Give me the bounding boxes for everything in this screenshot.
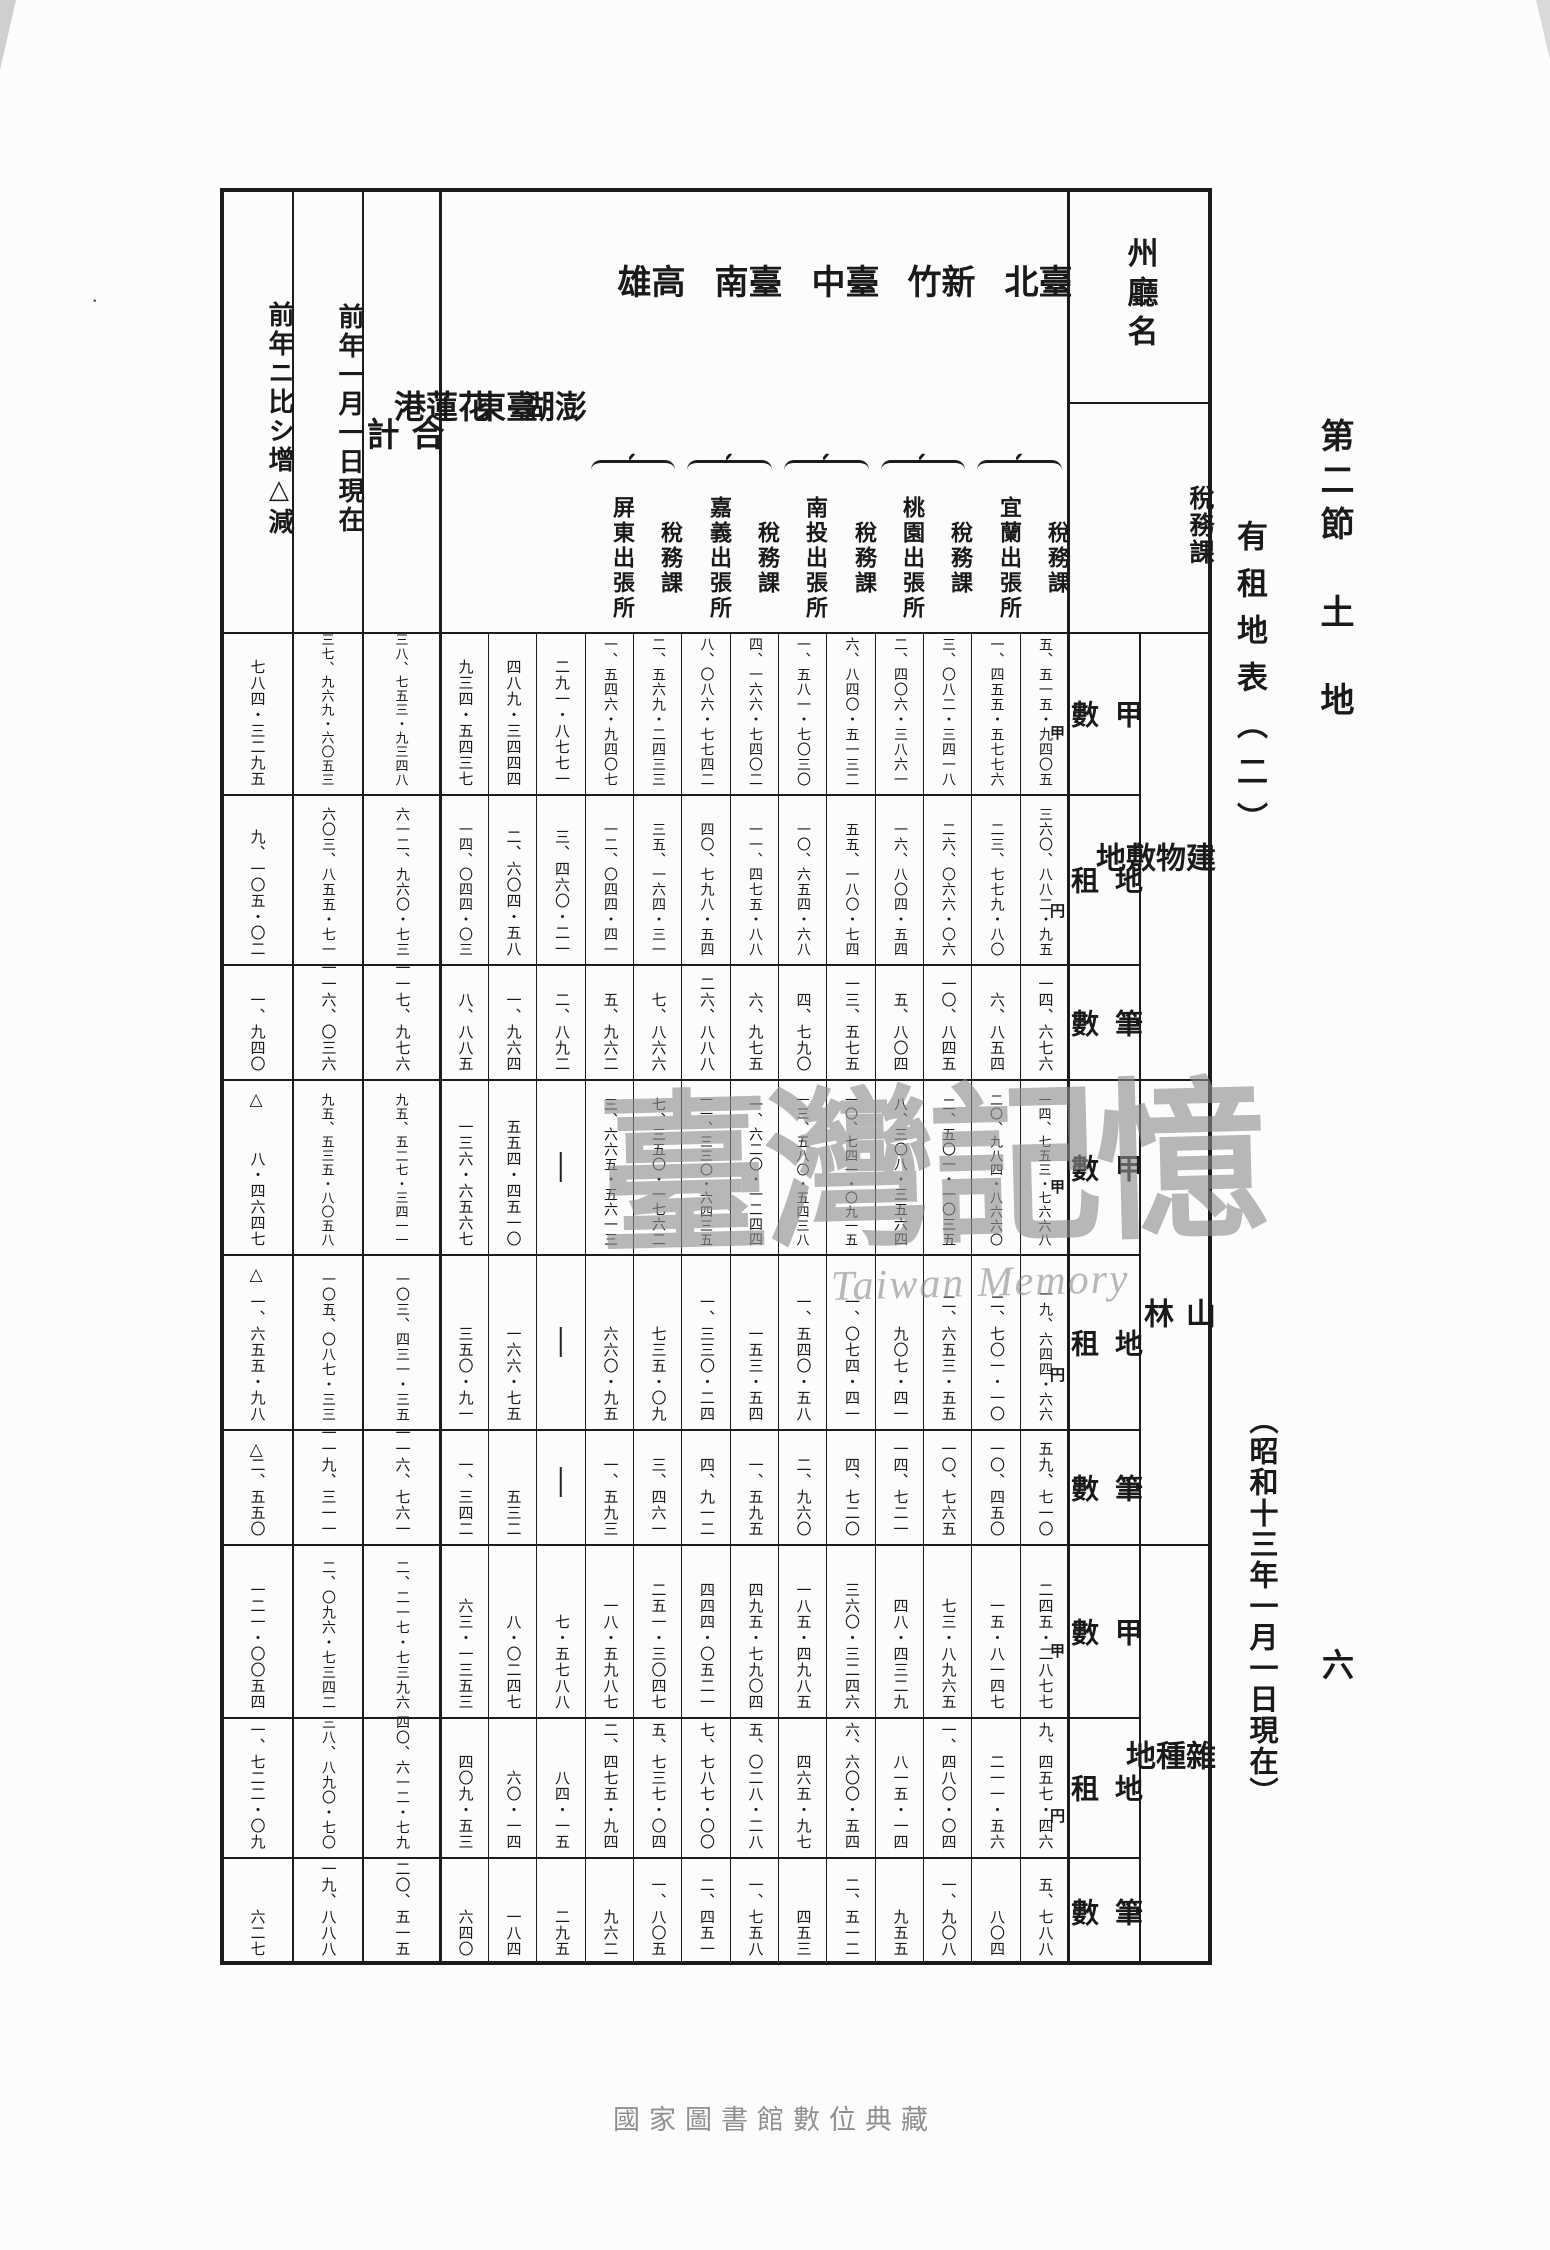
table-cell: 一、三四二 [440, 1430, 488, 1545]
table-cell: 五、〇二八・二八 [730, 1718, 778, 1858]
value: 三五、一六四・三一 [650, 822, 664, 957]
value: 一四、七五三・七六六八 [1038, 1093, 1051, 1247]
value: 三八、七五三・九三四八 [395, 633, 408, 787]
measure-label: 筆數 [1068, 965, 1140, 1080]
table-cell: 八、〇八六・七七四二 [681, 633, 730, 795]
value: 四八九・三四四四 [505, 659, 520, 787]
table-cell: 九五、五三五・八〇五八 [292, 1080, 362, 1255]
table-cell: 二〇、九八四・八六六〇 [971, 1080, 1020, 1255]
unit-marker: 甲 [1050, 1640, 1210, 1661]
table-cell: △二、五五〇 [220, 1430, 292, 1545]
value: 四八・四三二九 [892, 1598, 907, 1710]
value: 六四〇 [457, 1909, 472, 1957]
table-cell: △八・四六四七 [220, 1080, 292, 1255]
table-cell: 六、九七五 [730, 965, 778, 1080]
column-label: 臺東 [488, 212, 536, 600]
footer-caption: 國家圖書館數位典藏 [0, 2098, 1550, 2137]
table-cell: 三六〇・三二四六 [826, 1545, 875, 1718]
dash-value [559, 1327, 562, 1357]
value: 七・五七八八 [553, 1614, 568, 1710]
table-cell: 二三、七七九・八〇 [971, 795, 1020, 965]
table-cell: 一九、六四四・六六 [1020, 1255, 1068, 1430]
value: 一、七五八 [747, 1877, 762, 1957]
table-cell: 六三・一三五三 [440, 1545, 488, 1718]
column-sub-label: 稅務課 [633, 484, 681, 632]
table-cell: 一、五四六・九四〇七 [585, 633, 633, 795]
table-cell: 二五一・三〇四七 [633, 1545, 681, 1718]
value: 一一九、三一一 [320, 1425, 335, 1537]
value: 五三二 [505, 1489, 520, 1537]
value: 九五五 [892, 1909, 907, 1957]
value: 九、四五七・四六 [1037, 1722, 1052, 1850]
category-label: 建物敷地 [1140, 633, 1212, 1080]
value: 五五、一八〇・七四 [844, 822, 858, 957]
column-sub-label: 稅務課 [923, 484, 971, 632]
value: 一、五九五 [747, 1457, 762, 1537]
unit-marker: 甲 [1050, 722, 1210, 743]
table-cell: 一、〇七四・四一 [826, 1255, 875, 1430]
table-cell: 九、四五七・四六 [1020, 1718, 1068, 1858]
group-brace [977, 460, 1062, 477]
measure-label: 甲數 [1068, 633, 1140, 795]
value: 二、〇九六・七三四二 [320, 1560, 334, 1710]
value: 二九一・八七七一 [553, 659, 568, 787]
column-group-label: 臺中 [778, 212, 875, 422]
table-cell: 四、一六六・七四〇二 [730, 633, 778, 795]
table-cell: 一、三三〇・二四 [681, 1255, 730, 1430]
value: 一、六二〇・一二四四 [747, 1097, 761, 1247]
table-cell: 四四四・〇五二一 [681, 1545, 730, 1718]
value: 一四、七二一 [892, 1441, 907, 1537]
table-cell: 一一六、〇三六 [292, 965, 362, 1080]
table-cell: 四〇、六一二・七九 [362, 1718, 440, 1858]
section-title: 第二節 土 地 [1316, 418, 1350, 726]
table-cell: 一八四 [488, 1858, 536, 1965]
table-cell: 二六、八八八 [681, 965, 730, 1080]
value: 三五〇・九一 [457, 1326, 472, 1422]
table-cell: 八四・一五 [536, 1718, 585, 1858]
table-cell: 二、五〇一・一〇三五 [923, 1080, 971, 1255]
value: 七、七八七・〇〇 [698, 1722, 713, 1850]
value: 四、一六六・七四〇二 [747, 637, 761, 787]
table-cell: 一八・五九八七 [585, 1545, 633, 1718]
value: 一五三・五四 [747, 1326, 762, 1422]
table-cell: 六四〇 [440, 1858, 488, 1965]
table-cell: 三五〇・九一 [440, 1255, 488, 1430]
table-cell: 三、四六〇・二一 [536, 795, 585, 965]
value: 一二一・〇〇五四 [249, 1582, 264, 1710]
table-cell: 二、七〇一・一〇 [971, 1255, 1020, 1430]
value: 一〇、四五〇 [988, 1441, 1003, 1537]
table-cell: 八、三〇八・三五六四 [875, 1080, 923, 1255]
column-sub-label: 稅務課 [1020, 484, 1068, 632]
table-cell: 一、九六四 [488, 965, 536, 1080]
land-rent-table: 州廳名稅務課稅務出張所別臺北新竹臺中臺南高雄澎湖臺東花蓮港合計前年一月一日現在前… [220, 188, 1212, 1965]
value: 一八四 [505, 1909, 520, 1957]
table-cell: 一二、〇四四・四一 [585, 795, 633, 965]
table-cell: 七、三五〇・一七六二 [633, 1080, 681, 1255]
value: 一四、六七六 [1037, 976, 1052, 1072]
value: 九、一〇五・〇二 [249, 829, 264, 957]
value: 一五・八一四七 [988, 1598, 1003, 1710]
value: 七八四・三二九五 [249, 659, 264, 787]
value: 五九、七一〇 [1037, 1441, 1052, 1537]
table-cell: 一、六二〇・一二四四 [730, 1080, 778, 1255]
scan-corner-artifact [1536, 0, 1550, 60]
table-cell: 一、四五五・五七七六 [971, 633, 1020, 795]
column-label: 花蓮港 [440, 212, 488, 600]
category-label: 山林 [1140, 1080, 1212, 1545]
value: 一、〇七四・四一 [843, 1294, 858, 1422]
column-sub-label: 南投出張所 [778, 484, 826, 632]
table-cell: 三、六六五・五六一三 [585, 1080, 633, 1255]
table-cell: 二、六五三・五五 [923, 1255, 971, 1430]
value: 一九、八八八 [320, 1861, 335, 1957]
value: 七三五・〇九 [650, 1326, 665, 1422]
table-cell: 一八五・四九八五 [778, 1545, 826, 1718]
value: 二、七〇一・一〇 [988, 1294, 1003, 1422]
table-cell: 五、八〇四 [875, 965, 923, 1080]
table-cell: △一、六五五・九八 [220, 1255, 292, 1430]
value: 二九五 [553, 1909, 568, 1957]
value: 一、五四〇・五八 [795, 1294, 810, 1422]
scan-corner-artifact [0, 0, 16, 70]
table-cell: 一四、七二一 [875, 1430, 923, 1545]
value: 六、六〇〇・五四 [843, 1722, 858, 1850]
table-cell: 五三二 [488, 1430, 536, 1545]
table-cell: 八、八八五 [440, 965, 488, 1080]
value: 七、三五〇・一七六二 [650, 1097, 664, 1247]
table-cell: 一三、五七五 [826, 965, 875, 1080]
value: 一、四八〇・〇四 [940, 1722, 955, 1850]
value: 二〇、五一五 [394, 1861, 409, 1957]
total-column-label: 合計 [362, 288, 440, 578]
column-label: 前年ニ比シ增△減 [220, 214, 292, 624]
table-cell: 一〇、七六五 [923, 1430, 971, 1545]
value: 二、五六九・二四三三 [650, 637, 664, 787]
value: 一〇五、〇八七・三三 [320, 1272, 334, 1422]
table-cell: 四八・四三二九 [875, 1545, 923, 1718]
table-cell: 四、七二〇 [826, 1430, 875, 1545]
table-cell: 九〇七・四一 [875, 1255, 923, 1430]
table-cell: 六一二、九六〇・七三 [362, 795, 440, 965]
table-cell: 一、五九三 [585, 1430, 633, 1545]
table-cell: 七、八六六 [633, 965, 681, 1080]
value: 一八・五九八七 [602, 1598, 617, 1710]
value: 一六、八〇四・五四 [892, 822, 906, 957]
column-sub-label: 屏東出張所 [585, 484, 633, 632]
value: 四五三 [795, 1909, 810, 1957]
table-cell: 三八、八九〇・七〇 [292, 1718, 362, 1858]
table-cell: 六、八五四 [971, 965, 1020, 1080]
table-cell: 八・〇二四七 [488, 1545, 536, 1718]
value: 二、四七五・九四 [602, 1722, 617, 1850]
value: 二、五五〇 [249, 1457, 264, 1537]
table-cell: 一五・八一四七 [971, 1545, 1020, 1718]
table-cell: 一二一・〇〇五四 [220, 1545, 292, 1718]
table-cell: 五、七三七・〇四 [633, 1718, 681, 1858]
table-cell: 一、九〇八 [923, 1858, 971, 1965]
column-group-label: 臺南 [681, 212, 778, 422]
dash-value [559, 1467, 562, 1497]
table-cell: 九、一〇五・〇二 [220, 795, 292, 965]
column-sub-label: 宜蘭出張所 [971, 484, 1020, 632]
table-cell: 二一一・五六 [971, 1718, 1020, 1858]
value: 二六、〇六六・〇六 [940, 822, 954, 957]
value: 八・〇二四七 [505, 1614, 520, 1710]
table-cell: 七三五・〇九 [633, 1255, 681, 1430]
value: 三、六六五・五六一三 [602, 1097, 616, 1247]
table-cell: 三八、七五三・九三四八 [362, 633, 440, 795]
value: 八四・一五 [553, 1770, 568, 1850]
table-cell: 二、八九二 [536, 965, 585, 1080]
unit-marker: 円 [1050, 1805, 1210, 1826]
table-cell: 六、六〇〇・五四 [826, 1718, 875, 1858]
table-cell: 一、四八〇・〇四 [923, 1718, 971, 1858]
table-cell: 六〇・一四 [488, 1718, 536, 1858]
table-cell: 二九一・八七七一 [536, 633, 585, 795]
table-cell: 二、九六〇 [778, 1430, 826, 1545]
value: 一〇、八四五 [940, 976, 955, 1072]
table-cell: 一一六、七六一 [362, 1430, 440, 1545]
table-cell [536, 1080, 585, 1255]
table-cell: 六、八四〇・五一三二 [826, 633, 875, 795]
table-cell: 六二七 [220, 1858, 292, 1965]
table-cell: 三、〇八二・三四一八 [923, 633, 971, 795]
group-brace [784, 460, 869, 477]
table-cell: 一一、三三〇・六四三五 [681, 1080, 730, 1255]
value: 五、八〇四 [892, 992, 907, 1072]
table-cell: 一、五八一・七〇三〇 [778, 633, 826, 795]
value: 二、六〇四・五八 [505, 829, 520, 957]
table-cell: 五、五一五・九四〇五 [1020, 633, 1068, 795]
measure-label: 甲數 [1068, 1545, 1140, 1718]
table-cell: 一六六・七五 [488, 1255, 536, 1430]
value: 四九五・七九〇四 [747, 1582, 762, 1710]
table-cell: 五五、一八〇・七四 [826, 795, 875, 965]
column-group-label: 臺北 [971, 212, 1068, 422]
table-cell: 一、七二二・〇九 [220, 1718, 292, 1858]
value: 二三、七七九・八〇 [989, 822, 1003, 957]
table-cell: 二、五一二 [826, 1858, 875, 1965]
measure-label: 甲數 [1068, 1080, 1140, 1255]
table-cell: 九五、五二七・三四一一 [362, 1080, 440, 1255]
value: 二、九六〇 [795, 1457, 810, 1537]
group-brace [591, 460, 675, 477]
value: 五、九六二 [602, 992, 617, 1072]
table-cell: 一五三・五四 [730, 1255, 778, 1430]
value: 六三・一三五三 [457, 1598, 472, 1710]
column-sub-label: 稅務課 [730, 484, 778, 632]
value: 六、九七五 [747, 992, 762, 1072]
value: 二、六五三・五五 [940, 1294, 955, 1422]
table-cell: 二、四五一 [681, 1858, 730, 1965]
measure-label: 筆數 [1068, 1430, 1140, 1545]
table-cell: 一〇、四五〇 [971, 1430, 1020, 1545]
value: 一六六・七五 [505, 1326, 520, 1422]
table-cell: 二〇、五一五 [362, 1858, 440, 1965]
table-cell: 二六、〇六六・〇六 [923, 795, 971, 965]
table-cell: 四五三 [778, 1858, 826, 1965]
value: 一三、五七五 [843, 976, 858, 1072]
value: 四〇九・五三 [457, 1754, 472, 1850]
table-cell: 一九、八八八 [292, 1858, 362, 1965]
value: 一二、〇四四・四一 [602, 822, 616, 957]
measure-label: 地租 [1068, 795, 1140, 965]
table-cell: 二、四七五・九四 [585, 1718, 633, 1858]
table-cell: 四〇、七九八・五四 [681, 795, 730, 965]
column-group-label: 新竹 [875, 212, 971, 422]
table-border-top [220, 188, 1212, 192]
table-cell: 四六五・九七 [778, 1718, 826, 1858]
table-cell: 九六二 [585, 1858, 633, 1965]
value: 一、五八一・七〇三〇 [795, 637, 809, 787]
decrease-mark: △ [249, 1090, 262, 1110]
value: 一一六、七六一 [394, 1425, 409, 1537]
value: 一、八〇五 [650, 1877, 665, 1957]
value: 一、三四二 [457, 1457, 472, 1537]
table-cell: 一一七、九七六 [362, 965, 440, 1080]
value: 六〇・一四 [505, 1770, 520, 1850]
value: 一、四五五・五七七六 [989, 637, 1003, 787]
value: 三七、九六九・六〇五三 [321, 633, 334, 787]
table-cell: 一四、六七六 [1020, 965, 1068, 1080]
value: 一一六、〇三六 [320, 960, 335, 1072]
value: 一、九六四 [505, 992, 520, 1072]
table-cell: 四九五・七九〇四 [730, 1545, 778, 1718]
table-cell: 一、七五八 [730, 1858, 778, 1965]
stray-mark: . [92, 282, 98, 308]
value: 六〇三、八五五・七一 [320, 807, 334, 957]
value: 二、四五一 [698, 1877, 713, 1957]
measure-label: 地租 [1068, 1255, 1140, 1430]
value: 二、八九二 [553, 992, 568, 1072]
value: 二、二一七・七三九六 [394, 1560, 408, 1710]
group-brace [687, 460, 772, 477]
value: 六一二、九六〇・七三 [394, 807, 408, 957]
value: 八一五・一四 [892, 1754, 907, 1850]
table-cell: 八〇四 [971, 1858, 1020, 1965]
column-sub-label: 桃園出張所 [875, 484, 923, 632]
value: 五五四・四五一〇 [505, 1119, 520, 1247]
table-cell: 二、六〇四・五八 [488, 795, 536, 965]
table-cell: 一〇、七四一・〇九一五 [826, 1080, 875, 1255]
value: 三、四六一 [650, 1457, 665, 1537]
dash-value [559, 1152, 562, 1182]
value: 七、八六六 [650, 992, 665, 1072]
table-cell: 一、八〇五 [633, 1858, 681, 1965]
value: 一八五・四九八五 [795, 1582, 810, 1710]
value: 八、三〇八・三五六四 [892, 1097, 906, 1247]
table-cell: 一一、四七五・八八 [730, 795, 778, 965]
value: 八・四六四七 [249, 1151, 264, 1247]
value: 九五、五二七・三四一一 [395, 1093, 408, 1247]
measure-label: 地租 [1068, 1718, 1140, 1858]
value: 五、〇二八・二八 [747, 1722, 762, 1850]
value: 一三、五八〇・五四三八 [796, 1093, 809, 1247]
value: 八〇四 [988, 1909, 1003, 1957]
unit-marker: 甲 [1050, 1176, 1210, 1197]
table-cell: 四〇九・五三 [440, 1718, 488, 1858]
value: 五、七三七・〇四 [650, 1722, 665, 1850]
value: 二一一・五六 [988, 1754, 1003, 1850]
column-label: 前年一月一日現在 [292, 214, 362, 624]
value: 一、七二二・〇九 [249, 1722, 264, 1850]
unit-marker: 円 [1050, 900, 1210, 921]
value: 五、七八八 [1037, 1877, 1052, 1957]
value: 四六五・九七 [795, 1754, 810, 1850]
table-cell: 四八九・三四四四 [488, 633, 536, 795]
value: 九五、五三五・八〇五八 [321, 1093, 334, 1247]
table-cell: 一六、八〇四・五四 [875, 795, 923, 965]
table-title: 有租地表（二） [1234, 520, 1265, 849]
value: 一〇、七四一・〇九一五 [844, 1093, 857, 1247]
table-cell: 七、七八七・〇〇 [681, 1718, 730, 1858]
table-cell: 一、五四〇・五八 [778, 1255, 826, 1430]
column-sub-label: 嘉義出張所 [681, 484, 730, 632]
table-cell: 三五、一六四・三一 [633, 795, 681, 965]
table-cell: 二、五六九・二四三三 [633, 633, 681, 795]
value: 二〇、九八四・八六六〇 [989, 1093, 1002, 1247]
value: 一一、三三〇・六四三五 [699, 1093, 712, 1247]
table-cell: 一三、五八〇・五四三八 [778, 1080, 826, 1255]
value: 四四四・〇五二一 [698, 1582, 713, 1710]
value: 三六〇・三二四六 [843, 1582, 858, 1710]
value: 八、〇八六・七七四二 [699, 637, 713, 787]
table-cell: 二、〇九六・七三四二 [292, 1545, 362, 1718]
value: 二、五一二 [843, 1877, 858, 1957]
value: 二、五〇一・一〇三五 [940, 1097, 954, 1247]
value: 三六〇、八八二・九五 [1037, 807, 1051, 957]
table-cell: 一〇五、〇八七・三三 [292, 1255, 362, 1430]
unit-marker: 円 [1050, 1364, 1210, 1385]
value: 一、五四六・九四〇七 [602, 637, 616, 787]
value: 一九、六四四・六六 [1037, 1287, 1051, 1422]
value: 三、〇八二・三四一八 [940, 637, 954, 787]
value: 六二七 [249, 1909, 264, 1957]
value: 八、八八五 [457, 992, 472, 1072]
value: 九三四・五四三七 [457, 659, 472, 787]
column-group-label: 高雄 [585, 212, 681, 422]
table-cell: 七・五七八八 [536, 1545, 585, 1718]
table-cell: 二、四〇六・三八六一 [875, 633, 923, 795]
table-cell: 四、七九〇 [778, 965, 826, 1080]
value: 一、九〇八 [940, 1877, 955, 1957]
table-cell: 一、五九五 [730, 1430, 778, 1545]
value: 一、六五五・九八 [249, 1294, 264, 1422]
value: 二六、八八八 [698, 976, 713, 1072]
value: 四〇、七九八・五四 [699, 822, 713, 957]
value: 一、九四〇 [249, 992, 264, 1072]
value: 一三六・六五六七 [457, 1119, 472, 1247]
table-cell: 八一五・一四 [875, 1718, 923, 1858]
table-cell: 二、二一七・七三九六 [362, 1545, 440, 1718]
value: 四、七二〇 [843, 1457, 858, 1537]
value: 一、三三〇・二四 [698, 1294, 713, 1422]
table-cell: 九五五 [875, 1858, 923, 1965]
table-cell: 五、七八八 [1020, 1858, 1068, 1965]
table-cell: 五五四・四五一〇 [488, 1080, 536, 1255]
table-cell [536, 1255, 585, 1430]
value: 一、五九三 [602, 1457, 617, 1537]
table-cell: 五、九六二 [585, 965, 633, 1080]
table-cell: 一〇、八四五 [923, 965, 971, 1080]
table-cell: 九三四・五四三七 [440, 633, 488, 795]
value: 四、九一二 [698, 1457, 713, 1537]
table-cell: 一一九、三一一 [292, 1430, 362, 1545]
table-cell: 七三・八九六五 [923, 1545, 971, 1718]
value: 五、五一五・九四〇五 [1037, 637, 1051, 787]
